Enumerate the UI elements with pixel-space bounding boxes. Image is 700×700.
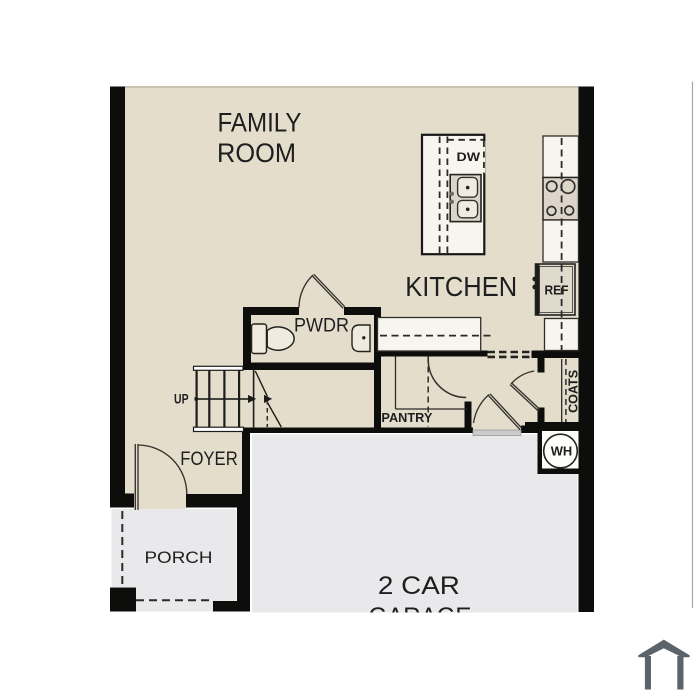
svg-text:UP: UP: [174, 391, 189, 406]
svg-text:2 CAR: 2 CAR: [378, 572, 460, 600]
svg-text:FOYER: FOYER: [180, 449, 238, 470]
svg-text:COATS: COATS: [567, 370, 581, 413]
svg-text:PWDR: PWDR: [294, 315, 349, 336]
svg-text:FAMILY: FAMILY: [218, 107, 302, 137]
svg-text:PORCH: PORCH: [145, 548, 213, 567]
svg-text:DW: DW: [457, 152, 481, 164]
svg-text:PANTRY: PANTRY: [381, 411, 433, 425]
svg-text:ROOM: ROOM: [217, 138, 296, 168]
svg-text:WH: WH: [551, 445, 573, 459]
svg-text:REF: REF: [545, 282, 569, 297]
svg-text:KITCHEN: KITCHEN: [405, 271, 517, 302]
